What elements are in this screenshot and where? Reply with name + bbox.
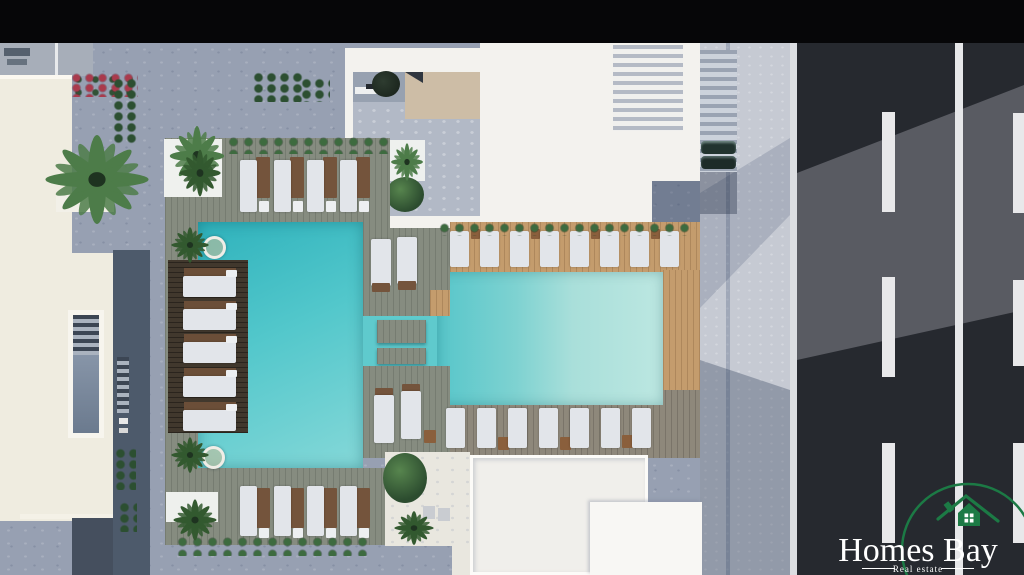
sand-path: [452, 546, 470, 575]
side-table: [293, 201, 303, 212]
deck-block-tan-corner: [430, 290, 450, 316]
roof-vent: [7, 59, 27, 65]
sun-lounger: [446, 408, 465, 448]
deck-tan-right: [663, 270, 700, 392]
courtyard-plant: [372, 71, 400, 97]
sun-lounger: [508, 408, 527, 448]
lounger-wood-pad: [398, 281, 416, 290]
parapet-edge: [0, 75, 72, 79]
sun-lounger: [374, 395, 394, 443]
round-bush: [383, 453, 427, 503]
aerial-resort-render: Homes Bay Real estate: [0, 0, 1024, 575]
daybed-mattress: [183, 342, 236, 363]
sun-lounger: [601, 408, 620, 448]
wall-fixture: [119, 418, 128, 424]
sun-lounger: [540, 231, 559, 267]
wall-plants: [118, 502, 137, 532]
sun-lounger: [340, 160, 357, 212]
daybed-mattress: [183, 276, 236, 297]
roof-louver-panel: [613, 45, 683, 131]
daybed-mattress: [183, 376, 236, 397]
courtyard-beige-patio: [405, 72, 480, 119]
pool-step-bridge: [377, 320, 426, 343]
skylight-louvers: [73, 315, 99, 355]
wall-louvers: [117, 357, 129, 413]
palm-tree: [393, 510, 435, 546]
lounger-wood-pad: [356, 157, 370, 198]
logo-tagline-text: Real estate: [893, 564, 943, 574]
paver-mat: [438, 508, 450, 521]
lane-dash: [882, 277, 895, 377]
daybed-pillow: [226, 336, 237, 343]
bottom-building-roof-2: [590, 502, 702, 575]
lane-dash: [882, 112, 895, 212]
sun-lounger: [630, 231, 649, 267]
daybed-pillow: [226, 370, 237, 377]
sun-lounger: [274, 486, 291, 536]
lounger-wood-pad: [290, 157, 304, 198]
parked-car: [701, 156, 736, 169]
sun-lounger: [240, 486, 257, 536]
lane-dash: [1013, 113, 1024, 213]
skylight-glass: [73, 355, 99, 433]
palm-tree: [170, 226, 210, 264]
palm-tree: [172, 498, 218, 542]
side-table: [326, 201, 336, 212]
sun-lounger: [660, 231, 679, 267]
parked-car: [701, 141, 736, 154]
sun-lounger: [401, 391, 421, 439]
palm-tree: [170, 436, 210, 474]
sun-lounger: [477, 408, 496, 448]
sun-lounger: [450, 231, 469, 267]
daybed-pillow: [226, 270, 237, 277]
hedge-row: [437, 222, 695, 236]
sun-lounger: [340, 486, 357, 536]
courtyard-frame-top: [345, 48, 480, 73]
sun-lounger: [480, 231, 499, 267]
plants: [300, 78, 330, 102]
side-stool: [424, 430, 436, 443]
sun-lounger: [539, 408, 558, 448]
courtyard-bush: [386, 177, 424, 212]
sun-lounger: [371, 239, 391, 286]
daybed-pillow: [226, 303, 237, 310]
lower-terrace-shadow: [72, 518, 113, 575]
lounger-wood-pad: [323, 488, 337, 528]
hedge-row: [226, 136, 390, 154]
sun-lounger: [307, 160, 324, 212]
palm-tree: [42, 132, 152, 227]
side-table: [259, 201, 269, 212]
daybed-pillow: [226, 404, 237, 411]
daybed-mattress: [183, 410, 236, 431]
side-table: [359, 201, 369, 212]
pool-step-bridge: [377, 348, 426, 364]
homes-bay-logo: Homes Bay Real estate: [812, 456, 1024, 575]
lounger-wood-pad: [356, 488, 370, 528]
sun-lounger: [307, 486, 324, 536]
palm-tree: [390, 142, 424, 182]
sun-lounger: [632, 408, 651, 448]
wall-fixture: [119, 428, 128, 433]
sun-lounger: [600, 231, 619, 267]
sun-lounger: [397, 237, 417, 284]
lounger-wood-pad: [323, 157, 337, 198]
plants: [252, 72, 304, 102]
sun-lounger: [510, 231, 529, 267]
swimming-pool-right: [437, 272, 663, 405]
top-dark-band: [0, 0, 1024, 43]
lounger-wood-pad: [256, 157, 270, 198]
sun-lounger: [570, 231, 589, 267]
sun-lounger: [240, 160, 257, 212]
wall-plants: [114, 448, 136, 490]
lounger-wood-pad: [290, 488, 304, 528]
pergola-shadow: [700, 172, 737, 214]
lounger-wood-pad: [372, 283, 390, 292]
lane-dash: [1013, 280, 1024, 366]
sun-lounger: [570, 408, 589, 448]
palm-tree: [178, 148, 222, 198]
roof-vent: [4, 48, 30, 56]
lounger-wood-pad: [256, 488, 270, 528]
sun-lounger: [274, 160, 291, 212]
daybed-mattress: [183, 309, 236, 330]
road-curb: [790, 43, 797, 575]
roof-railing: [55, 43, 58, 76]
